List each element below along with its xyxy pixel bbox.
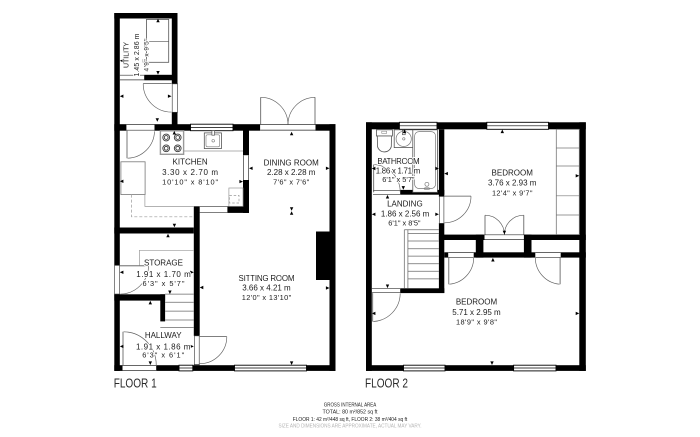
svg-text:DINING ROOM: DINING ROOM bbox=[264, 158, 319, 167]
svg-text:10'10" x 8'10": 10'10" x 8'10" bbox=[162, 178, 218, 187]
svg-text:1.91 x 1.70 m: 1.91 x 1.70 m bbox=[136, 270, 191, 279]
svg-text:3.76 x 2.93 m: 3.76 x 2.93 m bbox=[488, 179, 537, 188]
svg-text:18'9" x 9'8": 18'9" x 9'8" bbox=[456, 318, 497, 327]
svg-text:1.45 x 2.86 m: 1.45 x 2.86 m bbox=[134, 33, 141, 76]
svg-text:FLOOR 1: 42 m²/448 sq ft, FLOO: FLOOR 1: 42 m²/448 sq ft, FLOOR 2: 38 m²… bbox=[293, 417, 408, 423]
svg-text:HALLWAY: HALLWAY bbox=[145, 331, 182, 340]
svg-text:UTILITY: UTILITY bbox=[124, 42, 131, 68]
svg-text:GROSS INTERNAL AREA: GROSS INTERNAL AREA bbox=[324, 402, 377, 408]
svg-text:FLOOR 1: FLOOR 1 bbox=[114, 376, 157, 391]
svg-text:12'0" x 13'10": 12'0" x 13'10" bbox=[242, 293, 292, 302]
svg-text:3.66 x 4.21 m: 3.66 x 4.21 m bbox=[242, 284, 291, 293]
svg-text:FLOOR 2: FLOOR 2 bbox=[365, 376, 408, 391]
svg-text:BEDROOM: BEDROOM bbox=[456, 298, 498, 307]
svg-text:6'3" x 6'1": 6'3" x 6'1" bbox=[142, 351, 184, 360]
svg-text:2.28 x 2.28 m: 2.28 x 2.28 m bbox=[267, 168, 316, 177]
svg-text:TOTAL: 80 m²/852 sq ft: TOTAL: 80 m²/852 sq ft bbox=[323, 410, 378, 416]
svg-text:4'9" x 9'5": 4'9" x 9'5" bbox=[144, 38, 151, 72]
svg-text:LANDING: LANDING bbox=[387, 199, 423, 208]
svg-text:6'1" x 5'7": 6'1" x 5'7" bbox=[382, 175, 415, 184]
svg-text:6'1" x 8'5": 6'1" x 8'5" bbox=[388, 219, 421, 228]
svg-text:7'6" x 7'6": 7'6" x 7'6" bbox=[273, 178, 310, 187]
svg-text:5.71 x 2.95 m: 5.71 x 2.95 m bbox=[452, 308, 501, 317]
svg-text:STORAGE: STORAGE bbox=[144, 259, 183, 268]
svg-text:BATHROOM: BATHROOM bbox=[377, 157, 420, 166]
svg-text:KITCHEN: KITCHEN bbox=[173, 158, 208, 167]
svg-text:SITTING ROOM: SITTING ROOM bbox=[239, 274, 295, 283]
svg-text:3.30 x 2.70 m: 3.30 x 2.70 m bbox=[162, 168, 218, 177]
svg-text:BEDROOM: BEDROOM bbox=[492, 168, 534, 177]
svg-text:12'4" x 9'7": 12'4" x 9'7" bbox=[492, 188, 533, 197]
svg-text:SIZE AND DIMENSIONS ARE APPROX: SIZE AND DIMENSIONS ARE APPROXIMATE, ACT… bbox=[279, 423, 422, 429]
svg-text:1.86 x 2.56 m: 1.86 x 2.56 m bbox=[381, 210, 430, 219]
svg-text:6'3" x 5'7": 6'3" x 5'7" bbox=[143, 279, 185, 288]
